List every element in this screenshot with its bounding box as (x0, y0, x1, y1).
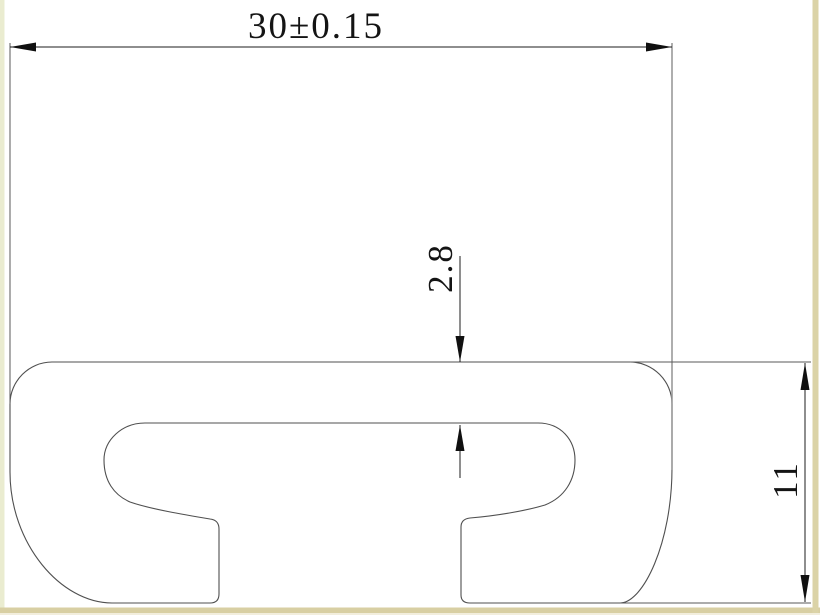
dimension-overall-height: 11 (620, 362, 811, 603)
dimension-top-wall: 2.8 (421, 243, 465, 478)
arrowhead-right (646, 43, 672, 52)
page-border-left (0, 0, 5, 612)
arrowhead-up-right (801, 363, 810, 390)
height-dimension-label: 11 (766, 461, 805, 499)
wall-dimension-label: 2.8 (421, 243, 460, 293)
arrowhead-down-right (801, 575, 810, 602)
profile-outline (10, 362, 672, 603)
page-border-bottom (0, 608, 820, 614)
arrowhead-left (10, 43, 36, 52)
width-dimension-label: 30±0.15 (248, 6, 384, 47)
page-border-right (813, 0, 819, 613)
arrowhead-down (456, 336, 465, 362)
arrowhead-up (456, 425, 465, 451)
drawing-canvas: 30±0.15 2.8 11 (0, 0, 820, 615)
dimension-overall-width: 30±0.15 (10, 6, 672, 470)
profile-drawing-svg: 30±0.15 2.8 11 (0, 0, 820, 615)
